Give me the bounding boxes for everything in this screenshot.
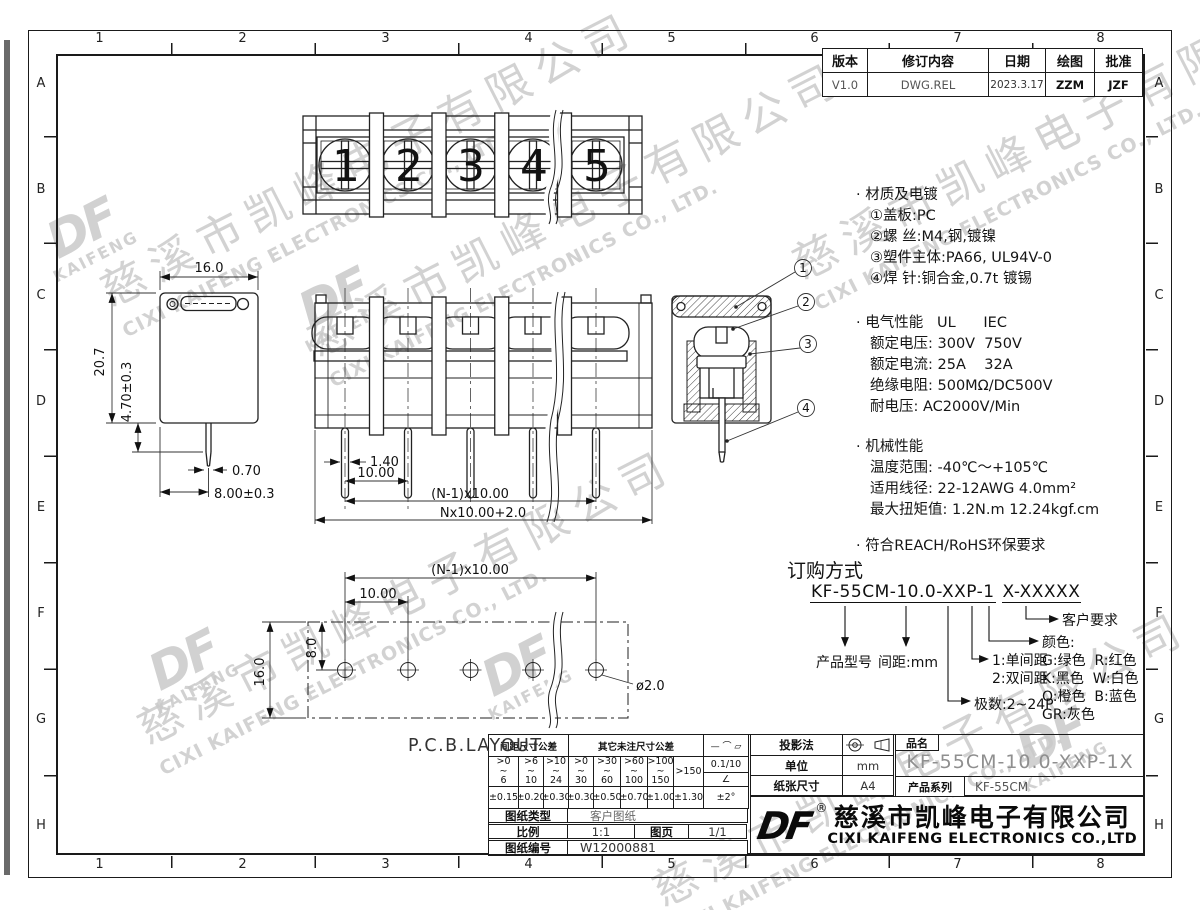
registered-mark: ® — [815, 801, 827, 815]
ordering-label-custom: 客户要求 — [1062, 610, 1118, 630]
revision-content: DWG.REL — [868, 73, 988, 96]
angle-tolerance: ±2° — [704, 787, 748, 808]
tolerance-value: ±0.15 — [489, 787, 518, 808]
paper-value: A4 — [843, 776, 893, 795]
drawing-sheet: 慈溪市凯峰电子有限公司 CIXI KAIFENG ELECTRONICS CO.… — [0, 0, 1200, 910]
series-label: 产品系列 — [896, 777, 965, 797]
part-name-value: KF-55CM-10.0-XXP-1X — [900, 751, 1140, 775]
series-value: KF-55CM — [965, 777, 1144, 797]
series-row: 产品系列 KF-55CM — [896, 776, 1144, 797]
unit-value: mm — [843, 756, 893, 775]
range-cell: >0~6 — [489, 757, 518, 786]
company-logo: DF — [754, 804, 813, 848]
company-name-en: CIXI KAIFENG ELECTRONICS CO.,LTD — [827, 831, 1137, 847]
revision-header: 版本 — [823, 49, 867, 72]
drawing-number-row: 图纸编号 W12000881 — [488, 840, 748, 855]
other-tolerance-header: 其它未注尺寸公差 — [569, 735, 703, 756]
third-angle-projection-icon — [845, 737, 891, 753]
drawing-type-label: 图纸类型 — [489, 809, 567, 822]
grid-cols-bottom: 12345678 — [28, 857, 1172, 877]
company-name-cn: 慈溪市凯峰电子有限公司 — [827, 805, 1137, 831]
revision-approved-by: JZF — [1095, 73, 1142, 96]
grid-rows-left: ABCDEFGH — [28, 30, 54, 878]
ordering-label-model: 产品型号 — [816, 652, 872, 672]
unit-label: 单位 — [751, 756, 842, 775]
part-name-block: 品名 KF-55CM-10.0-XXP-1X 产品系列 KF-55CM — [895, 734, 1145, 796]
projection-symbols — [843, 735, 893, 755]
flatness-angle-cell: 0.1/10 ∠ — [704, 757, 748, 786]
ordering-color-option: G:绿色 R:红色 — [1042, 650, 1136, 670]
projection-table: 投影法 单位 mm 纸张尺寸 A4 — [750, 734, 894, 796]
grid-row-label: A — [28, 30, 54, 136]
company-block: DF ® 慈溪市凯峰电子有限公司 CIXI KAIFENG ELECTRONIC… — [750, 796, 1145, 856]
geo-symbols: — ⌒ ▱ — [704, 735, 748, 756]
ordering-label-double: 2:双间距 — [992, 668, 1048, 688]
range-over-cell: >150 — [674, 757, 703, 786]
ordering-label-single: 1:单间距 — [992, 650, 1048, 670]
revision-date: 2023.3.17 — [989, 73, 1045, 96]
grid-rows-right: ABCDEFGH — [1146, 30, 1172, 878]
drawing-type-row: 图纸类型 客户图纸 — [488, 808, 748, 823]
drawing-number-value: W12000881 — [568, 841, 747, 854]
ordering-label-pitch: 间距:mm — [878, 652, 938, 672]
scale-label: 比例 — [489, 825, 567, 838]
revision-drawn-by: ZZM — [1046, 73, 1094, 96]
paper-label: 纸张尺寸 — [751, 776, 842, 795]
scale-row: 比例 1:1 图页 1/1 — [488, 824, 747, 839]
drawing-type-value: 客户图纸 — [568, 809, 747, 822]
scale-value: 1:1 — [568, 825, 634, 838]
drawing-number-label: 图纸编号 — [489, 841, 567, 854]
revision-table: 版本 修订内容 日期 绘图 批准 V1.0 DWG.REL 2023.3.17 … — [822, 48, 1143, 97]
pcb-layout-label: P.C.B.LAYOUT — [408, 736, 543, 756]
revision-version: V1.0 — [823, 73, 867, 96]
sheet-label: 图页 — [635, 825, 688, 838]
sheet-value: 1/1 — [689, 825, 746, 838]
part-name-label: 品名 — [896, 735, 939, 751]
projection-label: 投影法 — [751, 735, 842, 755]
company-names: 慈溪市凯峰电子有限公司 CIXI KAIFENG ELECTRONICS CO.… — [827, 805, 1137, 847]
ordering-label-color: 颜色: — [1042, 632, 1075, 652]
